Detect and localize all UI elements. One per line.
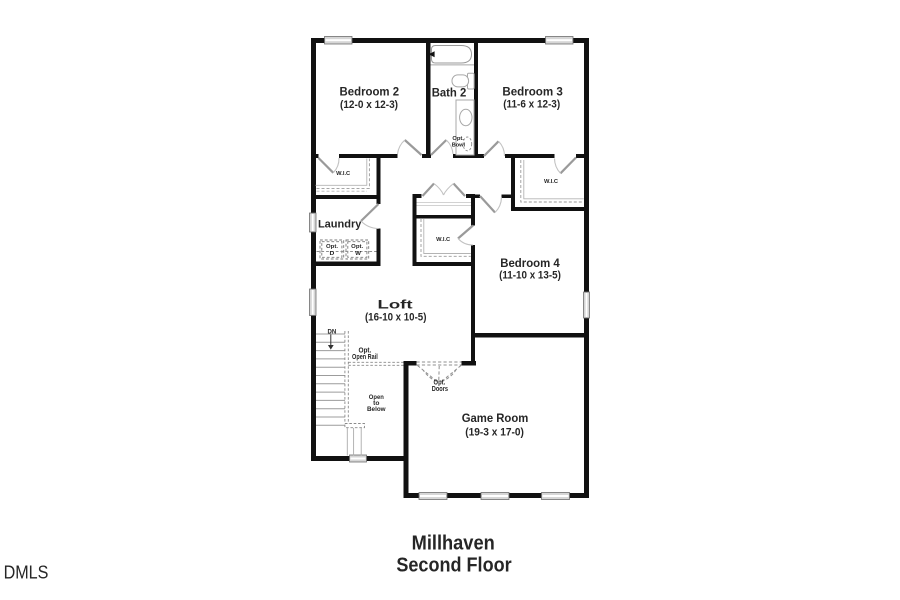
svg-text:(16-10 x 10-5): (16-10 x 10-5): [365, 311, 427, 323]
svg-text:(12-0 x 12-3): (12-0 x 12-3): [340, 99, 398, 111]
svg-text:Doors: Doors: [432, 386, 448, 393]
svg-text:Game Room: Game Room: [462, 411, 529, 425]
svg-text:Below: Below: [367, 406, 386, 413]
svg-text:W.I.C: W.I.C: [336, 171, 350, 177]
svg-text:Millhaven: Millhaven: [412, 533, 495, 555]
svg-text:Bath 2: Bath 2: [432, 88, 467, 100]
svg-text:(11-6 x 12-3): (11-6 x 12-3): [503, 99, 560, 111]
svg-text:D: D: [330, 251, 335, 257]
svg-text:Opt.: Opt.: [452, 136, 464, 142]
svg-text:(11-10 x 13-5): (11-10 x 13-5): [499, 270, 561, 282]
svg-text:Opt.: Opt.: [326, 244, 338, 250]
svg-text:Bedroom 4: Bedroom 4: [500, 256, 560, 270]
svg-text:Open Rail: Open Rail: [352, 354, 378, 361]
svg-text:Loft: Loft: [378, 298, 413, 312]
svg-text:DN: DN: [328, 328, 337, 335]
svg-text:DMLS: DMLS: [4, 563, 49, 583]
svg-text:Bedroom 2: Bedroom 2: [340, 85, 400, 99]
svg-text:Opt.: Opt.: [351, 244, 363, 250]
svg-text:W.I.C: W.I.C: [436, 237, 450, 243]
svg-text:Bedroom 3: Bedroom 3: [502, 85, 563, 99]
svg-text:(19-3 x 17-0): (19-3 x 17-0): [465, 426, 524, 438]
svg-text:W: W: [355, 251, 361, 257]
svg-text:W.I.C: W.I.C: [544, 179, 558, 185]
svg-text:Bowl: Bowl: [452, 143, 466, 149]
svg-text:Laundry: Laundry: [318, 219, 362, 231]
svg-text:Second Floor: Second Floor: [396, 554, 511, 576]
